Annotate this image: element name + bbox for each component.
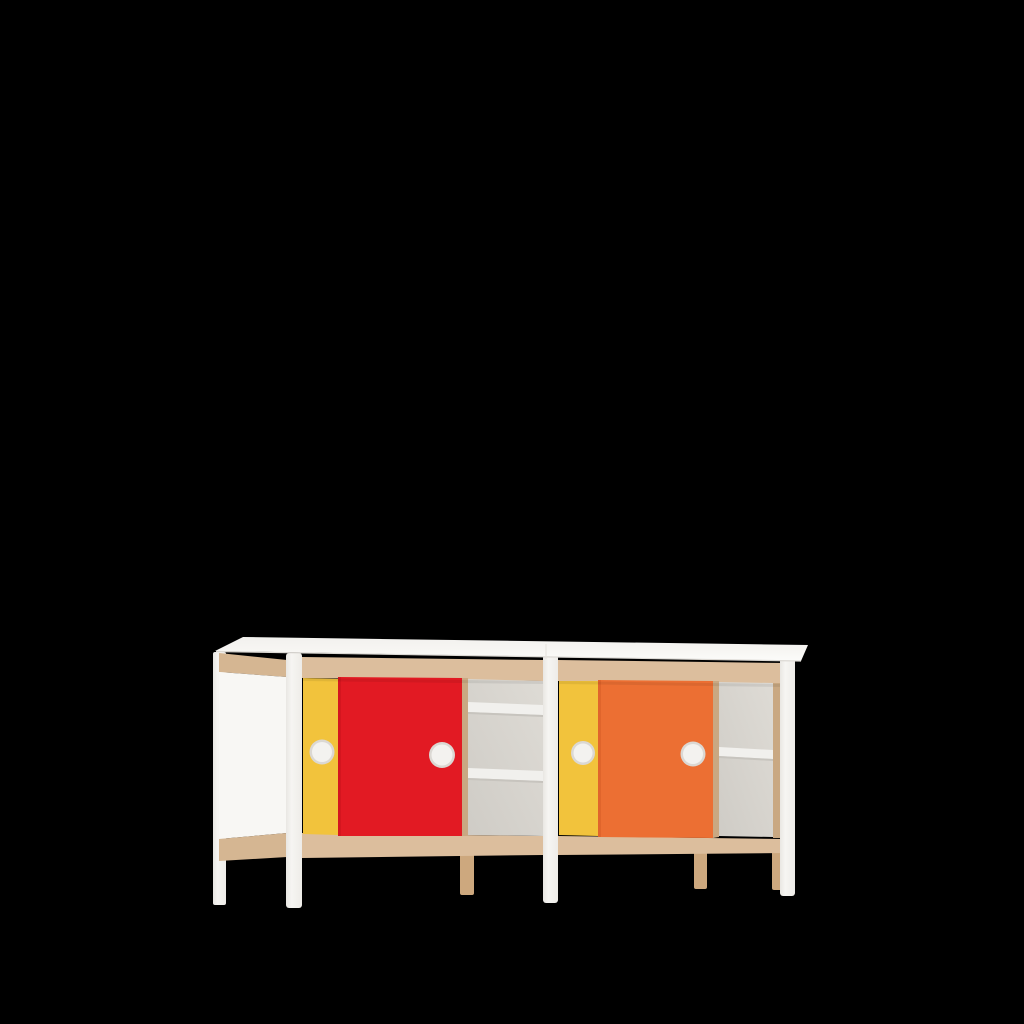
orange-door-edge-shade <box>598 680 601 837</box>
right-bay <box>558 660 785 855</box>
right-compartment-wood-edge-outer <box>773 683 780 838</box>
front-right-post-leg <box>780 658 795 896</box>
side-panel <box>219 672 287 839</box>
left-compartment-wood-edge <box>462 678 468 836</box>
middle-post-leg <box>543 655 558 903</box>
right-compartment-wood-edge <box>713 681 719 838</box>
orange-door-handle <box>681 742 706 767</box>
black-background <box>0 0 1024 1024</box>
right-bay-top-rail <box>558 660 785 684</box>
right-yellow-door-handle <box>571 741 595 765</box>
red-door-edge-shade <box>338 677 341 836</box>
red-door-handle <box>429 742 455 768</box>
left-bay-bottom-rail <box>302 833 543 858</box>
sideboard-render <box>0 0 1024 1024</box>
front-left-post-leg <box>286 653 302 908</box>
yellow-door-handle <box>310 740 335 765</box>
left-bay <box>302 657 543 858</box>
right-bay-bottom-rail <box>558 836 785 855</box>
product-render-canvas <box>0 0 1024 1024</box>
